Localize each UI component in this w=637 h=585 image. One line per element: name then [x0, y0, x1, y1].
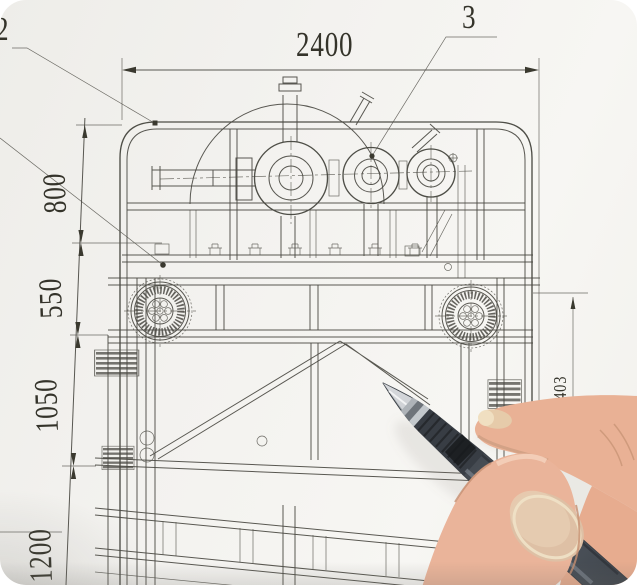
photo-of-drawing: 2400 2 3 800 550 1050 1200 [0, 0, 637, 585]
index-nail-edge [478, 410, 494, 426]
callout-3-label: 3 [462, 0, 476, 36]
bolt [368, 244, 382, 255]
scene-svg: 2400 2 3 800 550 1050 1200 [0, 0, 637, 585]
dim-height-800: 800 [37, 172, 74, 214]
bolt [208, 244, 222, 255]
bearing-left [124, 275, 196, 347]
gearbox [152, 77, 472, 271]
bearing-right [435, 280, 507, 352]
bolt [408, 244, 422, 255]
dim-height-550: 550 [33, 277, 70, 319]
bolt-stack [95, 350, 139, 376]
dim-height-1200: 1200 [22, 528, 60, 583]
screenshot: 2400 2 3 800 550 1050 1200 [0, 0, 637, 585]
bolt [248, 244, 262, 255]
truss-braces [150, 341, 430, 459]
callout-2-label: 2 [0, 10, 9, 47]
bolt [328, 244, 342, 255]
dim-height-1050: 1050 [28, 378, 66, 433]
dim-width-label: 2400 [296, 25, 353, 64]
